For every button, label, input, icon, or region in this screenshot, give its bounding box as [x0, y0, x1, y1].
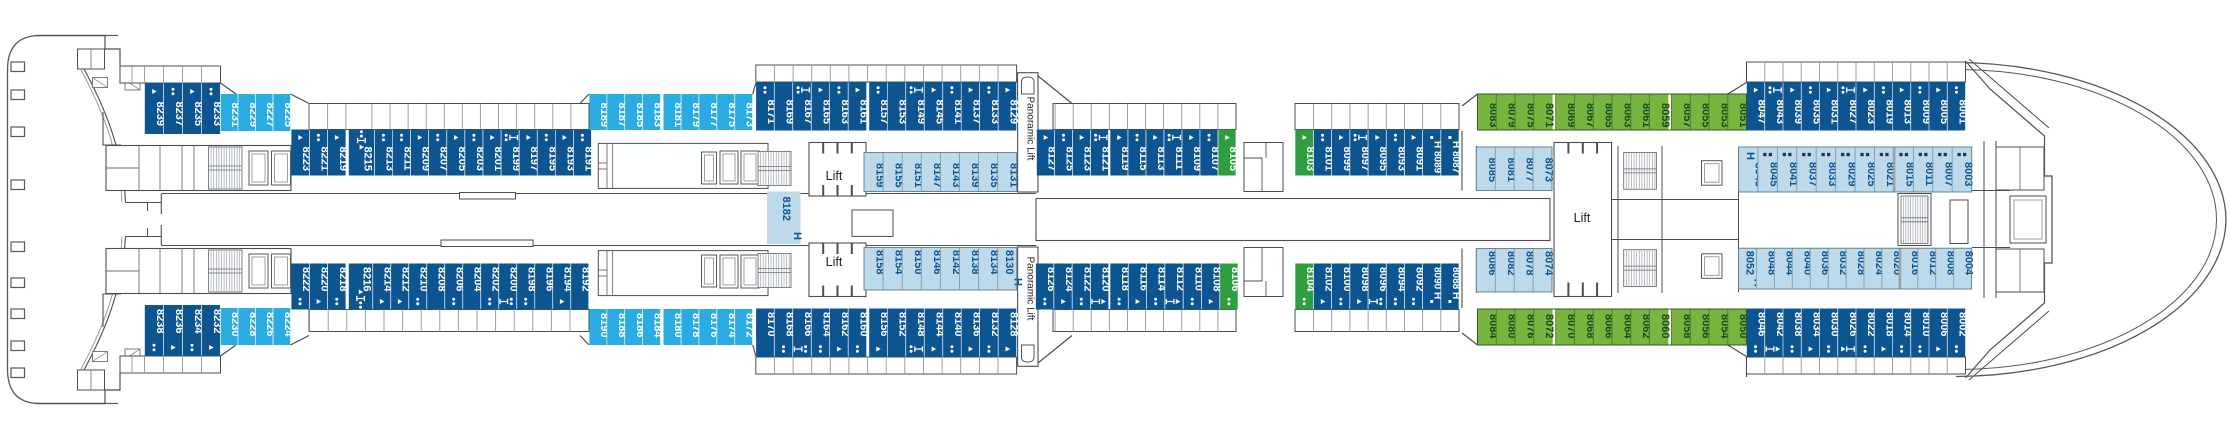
svg-text:8219: 8219 — [337, 147, 349, 171]
svg-text:Lift: Lift — [826, 169, 843, 183]
svg-text:8106: 8106 — [1229, 267, 1241, 291]
svg-text:8131: 8131 — [1007, 163, 1019, 187]
svg-text:8224: 8224 — [282, 312, 294, 337]
svg-text:Lift: Lift — [1574, 211, 1591, 225]
svg-text:8172: 8172 — [744, 313, 756, 337]
svg-text:H 8087: H 8087 — [1450, 141, 1461, 174]
svg-text:8004: 8004 — [1963, 251, 1975, 276]
svg-text:H: H — [791, 232, 803, 240]
svg-text:H: H — [1012, 278, 1024, 286]
svg-text:8105: 8105 — [1227, 147, 1239, 171]
svg-text:8071: 8071 — [1543, 103, 1555, 127]
svg-text:8161: 8161 — [857, 100, 869, 124]
svg-text:8002: 8002 — [1956, 312, 1968, 336]
svg-text:8173: 8173 — [744, 103, 756, 127]
svg-text:8074: 8074 — [1543, 251, 1555, 276]
svg-text:Panoramic Lift: Panoramic Lift — [1024, 97, 1035, 161]
svg-text:8121: 8121 — [1100, 147, 1112, 171]
svg-text:8182: 8182 — [780, 197, 792, 221]
svg-text:8059: 8059 — [1659, 103, 1671, 127]
svg-text:8218: 8218 — [337, 267, 349, 291]
svg-text:8192: 8192 — [580, 267, 592, 291]
svg-text:8130: 8130 — [1003, 250, 1015, 274]
svg-text:H: H — [1744, 152, 1756, 160]
svg-text:8215: 8215 — [361, 147, 373, 171]
svg-text:8160: 8160 — [857, 312, 869, 336]
svg-text:8191: 8191 — [582, 147, 594, 171]
svg-text:8052: 8052 — [1743, 251, 1755, 275]
svg-text:8073: 8073 — [1543, 158, 1555, 182]
svg-text:8060: 8060 — [1659, 314, 1671, 338]
svg-text:8120: 8120 — [1100, 267, 1112, 291]
svg-text:8001: 8001 — [1956, 100, 1968, 124]
svg-text:8129: 8129 — [1007, 100, 1019, 124]
svg-text:8072: 8072 — [1543, 314, 1555, 338]
svg-text:Panoramic Lift: Panoramic Lift — [1024, 257, 1035, 321]
svg-text:8184: 8184 — [652, 313, 664, 338]
svg-text:H 8089: H 8089 — [1432, 141, 1443, 174]
svg-text:8128: 8128 — [1007, 312, 1019, 336]
svg-text:Lift: Lift — [826, 255, 843, 269]
svg-text:8088 H: 8088 H — [1450, 267, 1461, 299]
svg-text:8090 H: 8090 H — [1432, 267, 1443, 299]
svg-text:8225: 8225 — [282, 103, 294, 127]
svg-text:8216: 8216 — [361, 267, 373, 291]
svg-text:8183: 8183 — [652, 103, 664, 127]
